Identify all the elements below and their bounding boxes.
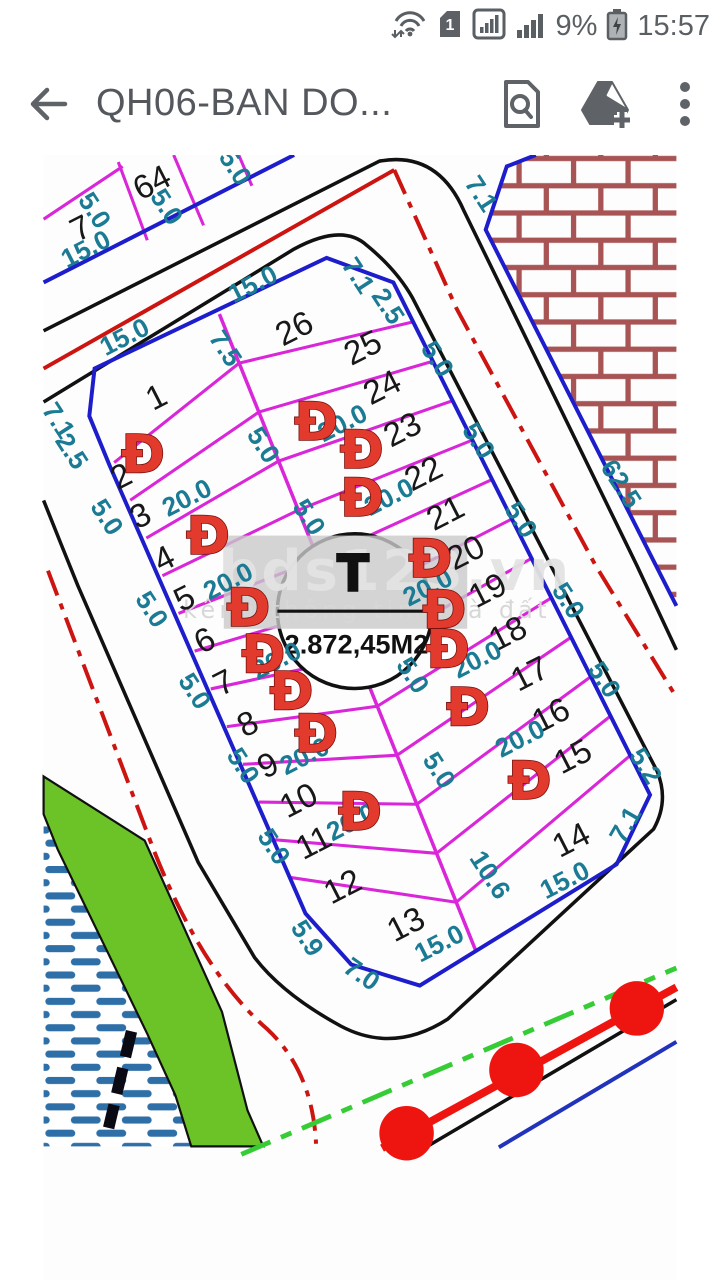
stamp-area-value: 2.872,45M2	[285, 628, 429, 659]
drive-add-icon	[578, 78, 636, 130]
clock: 15:57	[637, 10, 710, 43]
app-bar: QH06-BAN DO...	[0, 52, 720, 155]
svg-text:Đ: Đ	[426, 619, 470, 680]
document-title: QH06-BAN DO...	[96, 82, 392, 125]
svg-text:Đ: Đ	[508, 751, 552, 812]
map-canvas[interactable]: bds123.vn kênh thông tin nhà đất T 2.872…	[0, 155, 720, 1280]
svg-text:Đ: Đ	[446, 677, 490, 738]
back-button[interactable]	[0, 81, 96, 127]
mobile-data-icon	[472, 7, 506, 46]
svg-text:Đ: Đ	[121, 424, 165, 485]
signal-strength-icon	[515, 8, 547, 45]
overflow-menu-button[interactable]	[650, 80, 720, 128]
svg-text:Đ: Đ	[340, 468, 384, 529]
svg-text:Đ: Đ	[294, 704, 338, 765]
three-dot-menu-icon	[679, 80, 691, 128]
stamp-symbol: T	[337, 544, 368, 601]
svg-text:1: 1	[445, 17, 454, 34]
battery-charging-icon	[606, 7, 628, 46]
back-arrow-icon	[25, 81, 71, 127]
document-search-icon	[498, 78, 544, 130]
wifi-icon	[388, 7, 428, 46]
cadastral-map[interactable]: bds123.vn kênh thông tin nhà đất T 2.872…	[0, 155, 720, 1280]
sim-card-icon: 1	[437, 8, 463, 45]
svg-text:Đ: Đ	[186, 506, 230, 567]
find-in-document-button[interactable]	[478, 78, 564, 130]
status-bar: 1 9% 15:57	[0, 0, 720, 52]
add-to-drive-button[interactable]	[564, 78, 650, 130]
svg-text:Đ: Đ	[338, 782, 382, 843]
battery-percent: 9%	[556, 10, 598, 43]
svg-text:Đ: Đ	[294, 392, 338, 453]
watermark-brand: bds123.vn	[219, 539, 572, 604]
